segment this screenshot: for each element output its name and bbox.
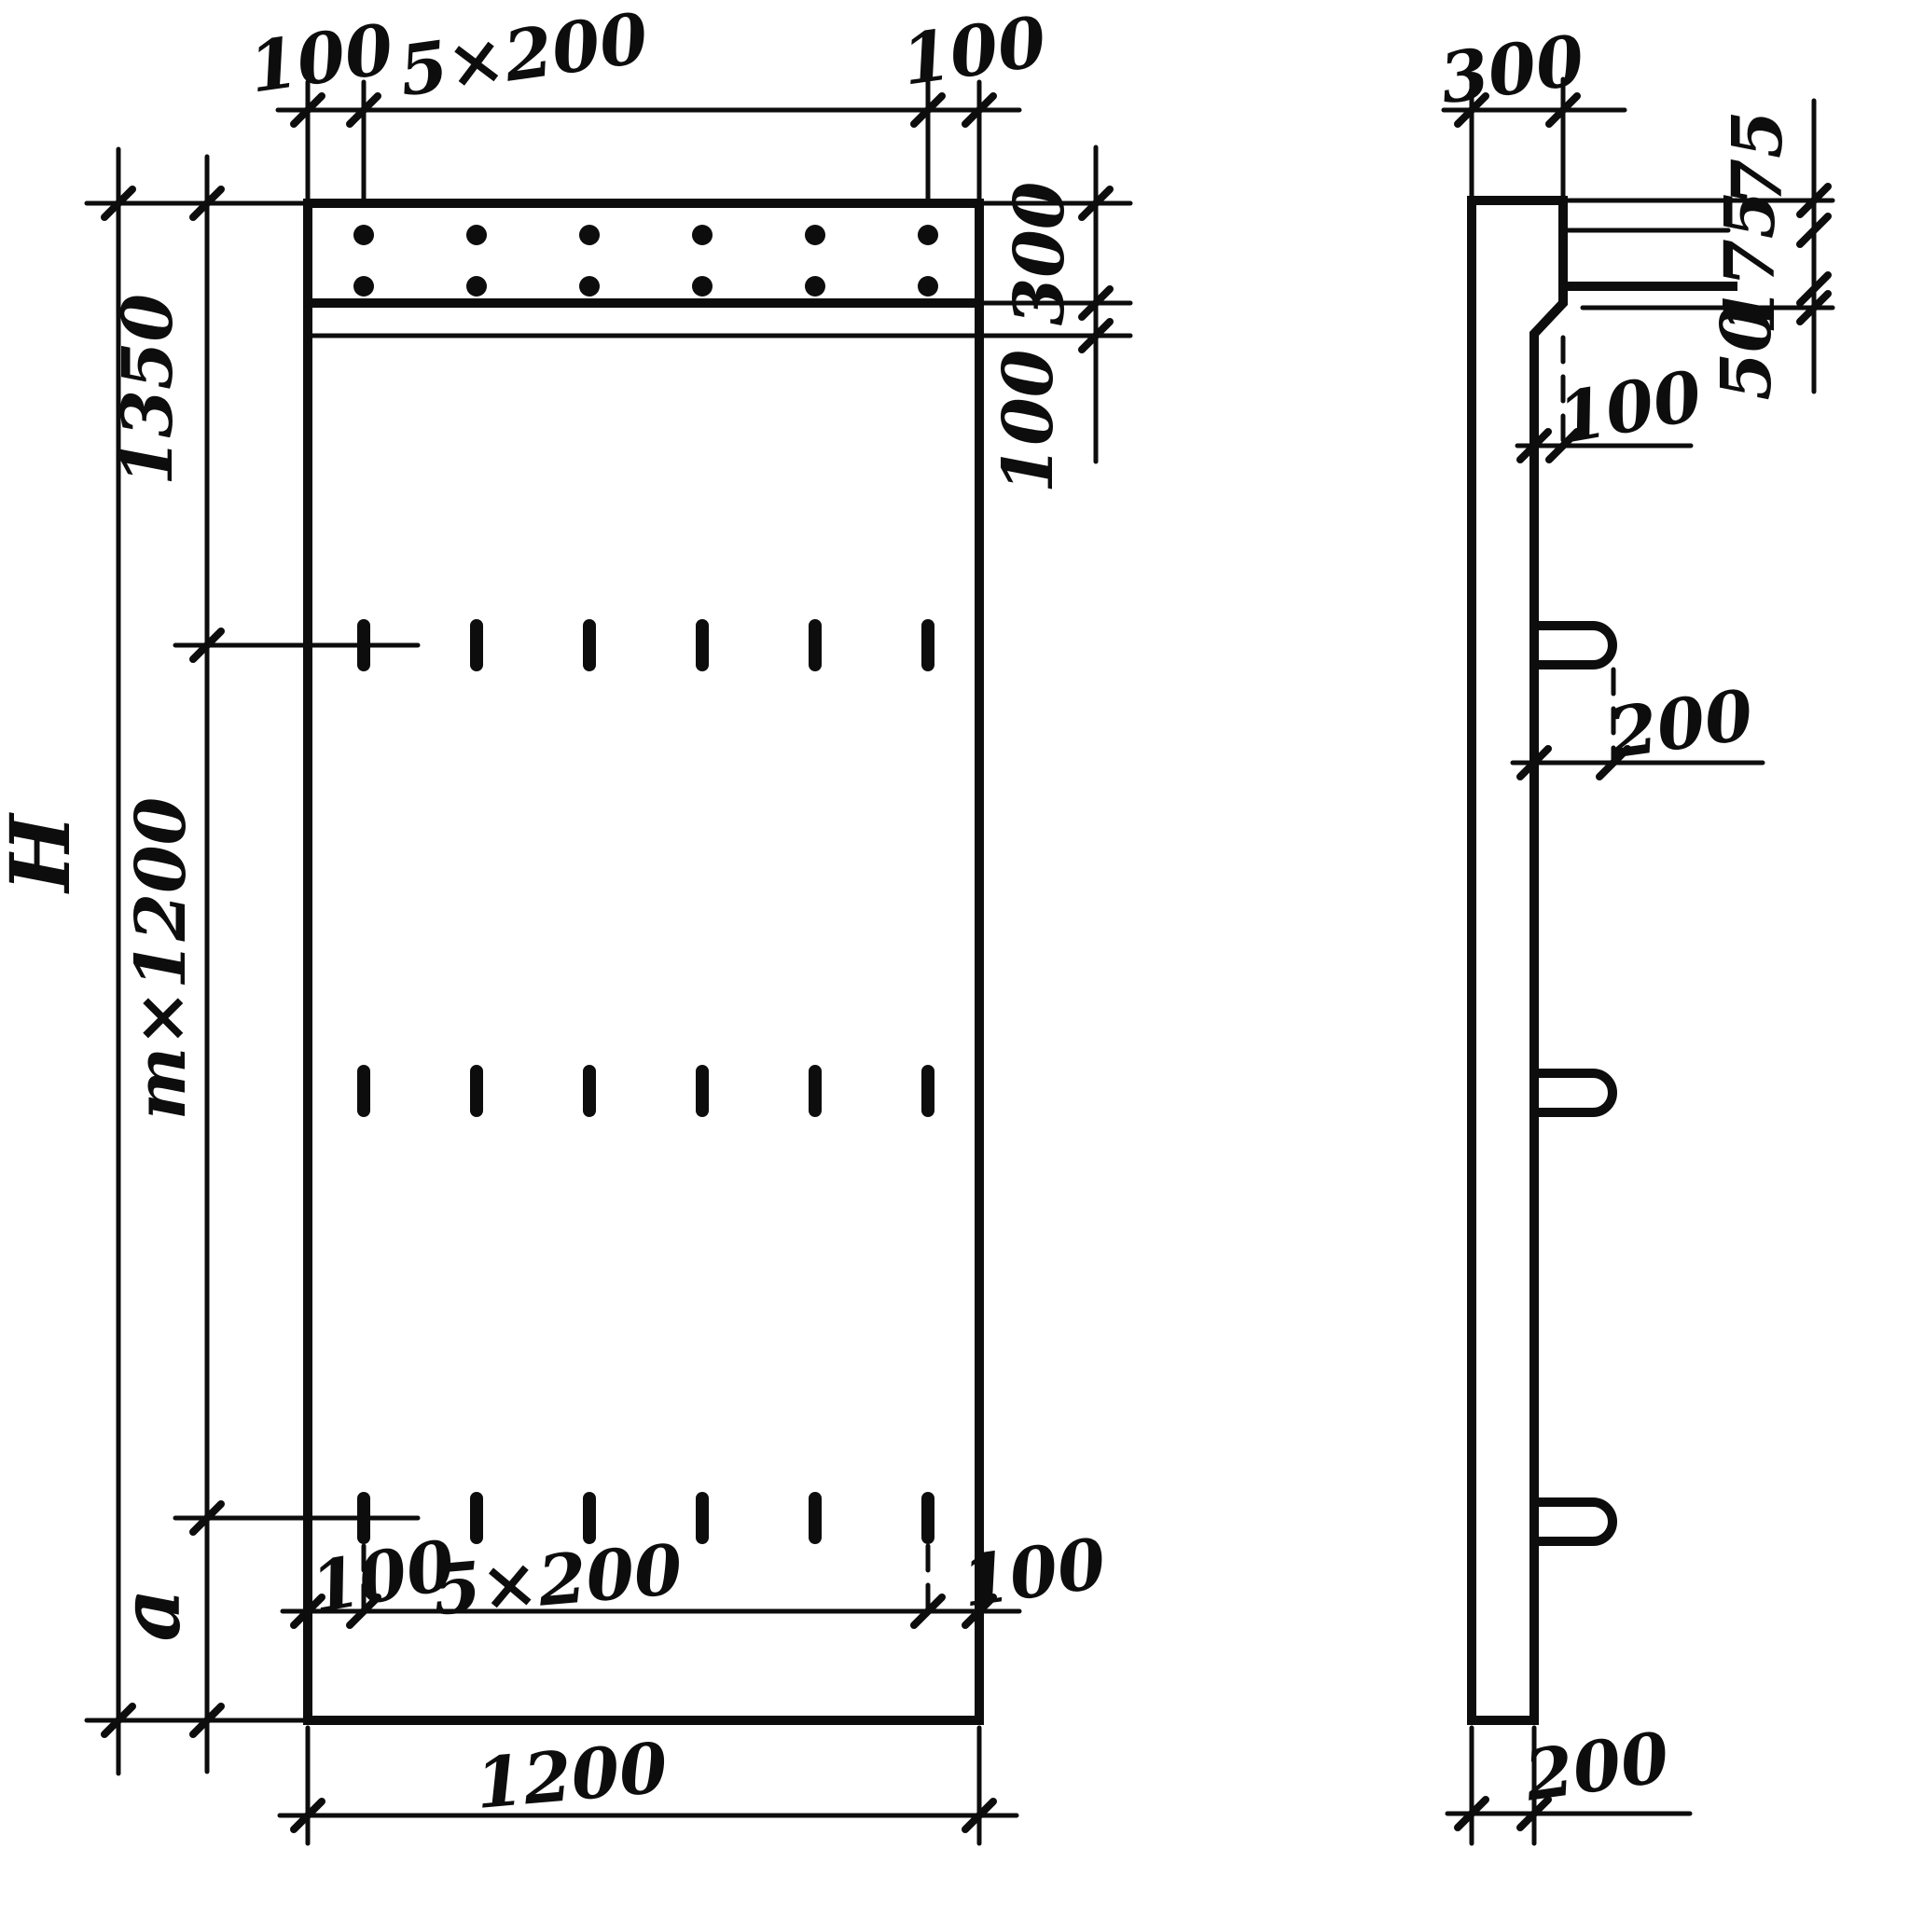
dim-front-top-zone: 1350 [108,294,188,486]
front-panel-outline [308,203,979,1720]
side-ledge-step-dimension: 100 [1517,338,1708,460]
anchor-dots [353,225,938,297]
front-left-dimension: 1350 H m×1200 a [0,149,418,1773]
front-view: 100 5×200 100 300 100 1350 H [0,0,1130,1843]
dim-side-panel-thickness: 200 [1519,1718,1674,1817]
front-width-dimension: 1200 [280,1728,1017,1843]
side-top-dimension: 300 [1435,21,1625,198]
technical-drawing-canvas: 100 5×200 100 300 100 1350 H [0,0,1910,1932]
side-hook-dimension: 200 [1513,669,1763,777]
dim-side-bar-bottom-offset: 50 [1707,305,1787,401]
dim-front-bottom-spacing: 5×200 [430,1530,685,1632]
dim-front-bottom-zone: a [102,1588,199,1641]
front-right-dimension: 300 100 [979,147,1130,493]
dim-front-width: 1200 [472,1728,671,1825]
dim-side-hook-length: 200 [1603,675,1758,775]
dim-front-repeat-zone: m×1200 [121,797,201,1120]
dim-front-total-height: H [0,812,89,895]
slot-rows [357,619,934,1544]
side-view: 300 75 175 50 100 200 [1435,21,1833,1843]
dim-front-top-right-offset: 100 [897,2,1051,102]
drawing-page: 100 5×200 100 300 100 1350 H [0,0,1910,1932]
dim-front-top-spacing: 5×200 [394,0,653,112]
side-thickness-dimension: 200 [1447,1718,1690,1843]
dim-front-ledge-lip: 100 [989,350,1069,493]
front-top-dimension: 100 5×200 100 [244,0,1051,200]
dim-front-ledge-height: 300 [1000,182,1080,325]
side-bar-dimension: 75 175 50 [1707,101,1828,400]
